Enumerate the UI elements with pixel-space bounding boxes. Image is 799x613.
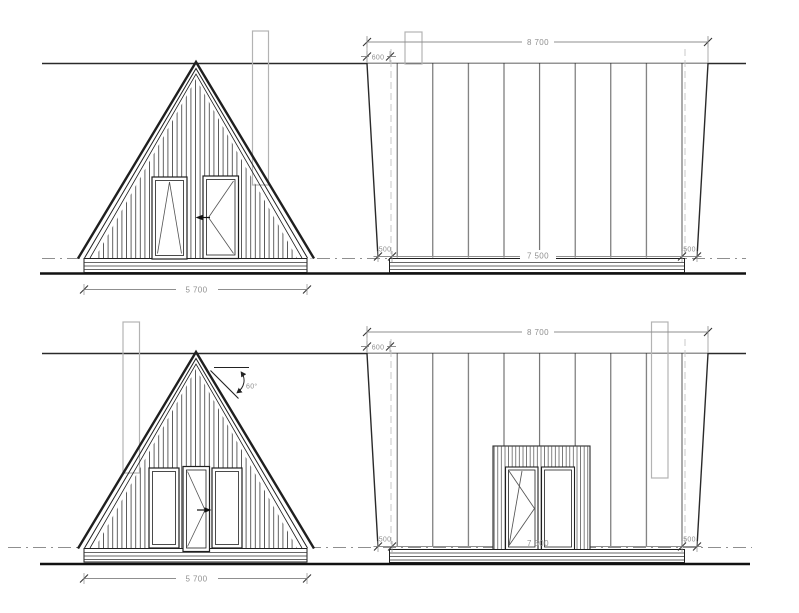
dim-label-inner-width-top: 7 500 (527, 252, 549, 261)
door-leaf-left (506, 467, 539, 550)
side-elevation-bottom: 8 700 600 500 500 7 500 (361, 322, 712, 563)
dim-label-overall-width-bottom: 8 700 (527, 328, 549, 337)
side-elevation-top: 8 700 600 500 500 7 500 (361, 32, 712, 273)
dim-overall-width-top: 8 700 (363, 36, 712, 63)
front-elevation-top: 5 700 (78, 31, 314, 295)
dim-overall-width-bottom: 8 700 (363, 326, 712, 353)
dim-label-offset-left-top: 500 (379, 247, 392, 254)
door-leaf-right (542, 467, 575, 550)
door-assembly (493, 446, 590, 551)
roof-angle-label: 60° (246, 383, 258, 391)
window-left (149, 468, 179, 548)
dim-label-overhang-top: 600 (372, 55, 385, 62)
dim-label-overhang-bottom: 600 (372, 345, 385, 352)
dim-label-offset-left-bottom: 500 (379, 537, 392, 544)
dim-front-width-bottom: 5 700 (80, 573, 311, 584)
base-platform (390, 550, 685, 563)
dim-label-offset-right-bottom: 500 (683, 537, 696, 544)
dim-label-overall-width-top: 8 700 (527, 38, 549, 47)
elevation-drawing: 5 700 8 700 600 (0, 0, 799, 613)
dim-label-front-width-bottom: 5 700 (185, 575, 207, 584)
window-left (152, 177, 187, 259)
base-platform (84, 259, 307, 273)
dim-label-offset-right-top: 500 (683, 247, 696, 254)
window-right (212, 468, 242, 548)
dim-front-width-top: 5 700 (80, 284, 311, 295)
angle-arc-arrow-icon (238, 373, 245, 393)
gable-siding (95, 79, 297, 258)
dim-label-front-width-top: 5 700 (185, 286, 207, 295)
front-elevation-bottom: 60° 5 700 (78, 322, 314, 584)
dim-label-inner-width-bottom: 7 500 (527, 539, 549, 548)
side-wall-panels (367, 64, 708, 258)
entry-door (183, 467, 212, 552)
base-platform (390, 259, 685, 273)
chimney (405, 32, 422, 64)
